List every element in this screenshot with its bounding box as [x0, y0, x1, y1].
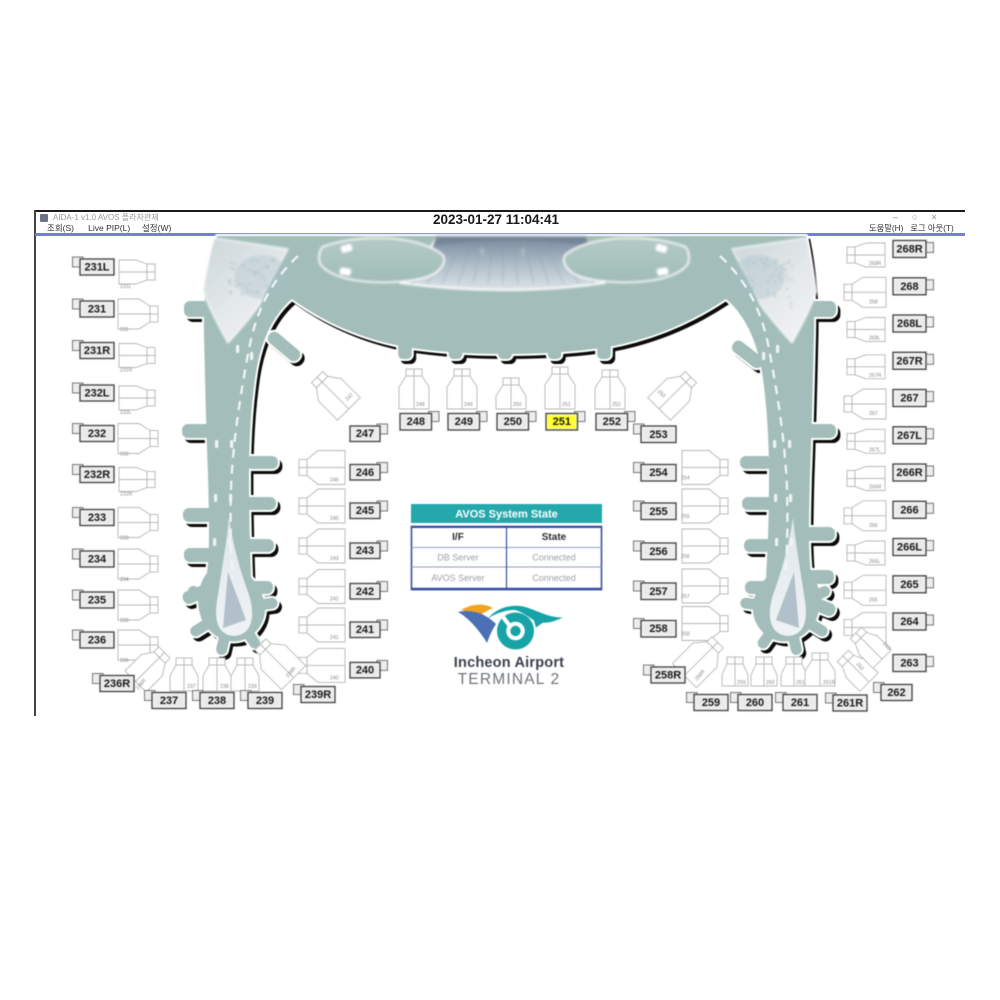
svg-text:AVOS System State: AVOS System State: [455, 509, 558, 521]
svg-text:241: 241: [356, 624, 374, 636]
svg-text:261R: 261R: [837, 698, 863, 710]
svg-text:245: 245: [330, 516, 339, 522]
svg-text:241: 241: [330, 635, 339, 641]
svg-text:231: 231: [88, 304, 106, 316]
svg-text:267: 267: [869, 411, 878, 417]
svg-text:263: 263: [900, 658, 918, 670]
svg-text:233: 233: [88, 512, 106, 524]
svg-text:256: 256: [649, 546, 667, 558]
svg-text:266: 266: [869, 523, 878, 529]
svg-text:264: 264: [900, 616, 919, 628]
svg-text:265: 265: [900, 579, 918, 591]
svg-text:268L: 268L: [869, 336, 881, 342]
svg-text:240: 240: [330, 675, 339, 681]
svg-text:231L: 231L: [120, 284, 132, 290]
svg-text:266L: 266L: [897, 542, 922, 554]
svg-text:260: 260: [746, 697, 764, 709]
svg-text:257: 257: [649, 586, 667, 598]
svg-text:266L: 266L: [869, 559, 881, 565]
svg-text:266R: 266R: [896, 467, 922, 479]
svg-text:239: 239: [256, 695, 274, 707]
svg-text:267R: 267R: [896, 355, 922, 367]
svg-text:253: 253: [649, 429, 667, 441]
svg-text:268L: 268L: [897, 318, 922, 330]
svg-text:232L: 232L: [84, 388, 109, 400]
svg-text:231R: 231R: [84, 345, 110, 357]
svg-text:DB Server: DB Server: [437, 553, 479, 563]
svg-text:268: 268: [900, 281, 918, 293]
svg-text:268: 268: [869, 299, 878, 305]
svg-text:236R: 236R: [104, 678, 130, 690]
svg-text:239: 239: [248, 684, 257, 690]
svg-text:254: 254: [681, 476, 690, 482]
svg-text:249: 249: [464, 402, 473, 408]
svg-text:251: 251: [562, 402, 571, 408]
svg-text:234: 234: [88, 554, 107, 566]
svg-text:250: 250: [513, 402, 522, 408]
svg-text:State: State: [542, 532, 567, 543]
svg-text:257: 257: [681, 594, 690, 600]
svg-text:261R: 261R: [823, 680, 836, 686]
svg-text:232L: 232L: [120, 410, 132, 416]
svg-text:267: 267: [900, 393, 918, 405]
svg-text:252: 252: [612, 402, 621, 408]
svg-text:235: 235: [88, 595, 106, 607]
svg-text:266R: 266R: [869, 485, 882, 491]
svg-text:Incheon Airport: Incheon Airport: [454, 655, 564, 671]
svg-text:265: 265: [869, 597, 878, 603]
svg-text:236: 236: [120, 658, 129, 664]
svg-text:249: 249: [455, 416, 473, 428]
svg-text:268R: 268R: [896, 244, 922, 256]
svg-text:247: 247: [356, 428, 374, 440]
svg-text:248: 248: [416, 402, 425, 408]
svg-text:232: 232: [120, 452, 129, 458]
svg-text:TERMINAL 2: TERMINAL 2: [458, 671, 561, 688]
svg-text:I/F: I/F: [452, 532, 464, 543]
svg-text:234: 234: [120, 577, 129, 583]
svg-text:258R: 258R: [655, 670, 681, 682]
svg-text:238: 238: [208, 695, 226, 707]
svg-text:267L: 267L: [869, 447, 881, 453]
svg-text:Connected: Connected: [532, 573, 576, 583]
svg-text:240: 240: [356, 665, 374, 677]
svg-text:AVOS Server: AVOS Server: [431, 573, 484, 583]
svg-text:252: 252: [603, 416, 621, 428]
svg-text:250: 250: [504, 416, 522, 428]
svg-text:259: 259: [737, 680, 746, 686]
svg-text:236: 236: [88, 635, 106, 647]
svg-text:255: 255: [649, 506, 667, 518]
svg-text:237: 237: [160, 695, 178, 707]
svg-text:242: 242: [356, 586, 374, 598]
svg-text:246: 246: [330, 478, 339, 484]
svg-text:238: 238: [220, 684, 229, 690]
svg-text:245: 245: [356, 505, 374, 517]
svg-text:258: 258: [681, 632, 690, 638]
svg-text:232R: 232R: [120, 492, 133, 498]
svg-text:258: 258: [649, 623, 667, 635]
svg-text:248: 248: [407, 416, 425, 428]
svg-text:237: 237: [187, 684, 196, 690]
svg-text:251: 251: [553, 416, 571, 428]
svg-text:256: 256: [681, 554, 690, 560]
svg-text:235: 235: [120, 618, 129, 624]
svg-text:239R: 239R: [305, 689, 331, 701]
svg-text:246: 246: [356, 467, 374, 479]
svg-text:231: 231: [120, 327, 129, 333]
svg-text:231L: 231L: [84, 262, 109, 274]
svg-text:262: 262: [887, 687, 905, 699]
svg-text:268R: 268R: [869, 261, 882, 267]
svg-text:267R: 267R: [869, 373, 882, 379]
svg-text:261: 261: [796, 680, 805, 686]
svg-text:242: 242: [330, 597, 339, 603]
svg-text:232R: 232R: [84, 469, 110, 481]
svg-text:243: 243: [356, 545, 374, 557]
svg-text:260: 260: [766, 680, 775, 686]
svg-text:261: 261: [791, 697, 809, 709]
svg-text:267L: 267L: [897, 430, 922, 442]
svg-text:231R: 231R: [120, 368, 133, 374]
svg-text:266: 266: [900, 504, 918, 516]
svg-text:255: 255: [681, 514, 690, 520]
svg-text:259: 259: [702, 697, 720, 709]
svg-text:243: 243: [330, 556, 339, 562]
svg-text:Connected: Connected: [532, 553, 576, 563]
svg-text:233: 233: [120, 536, 129, 542]
svg-text:232: 232: [88, 428, 106, 440]
svg-text:254: 254: [649, 467, 668, 479]
